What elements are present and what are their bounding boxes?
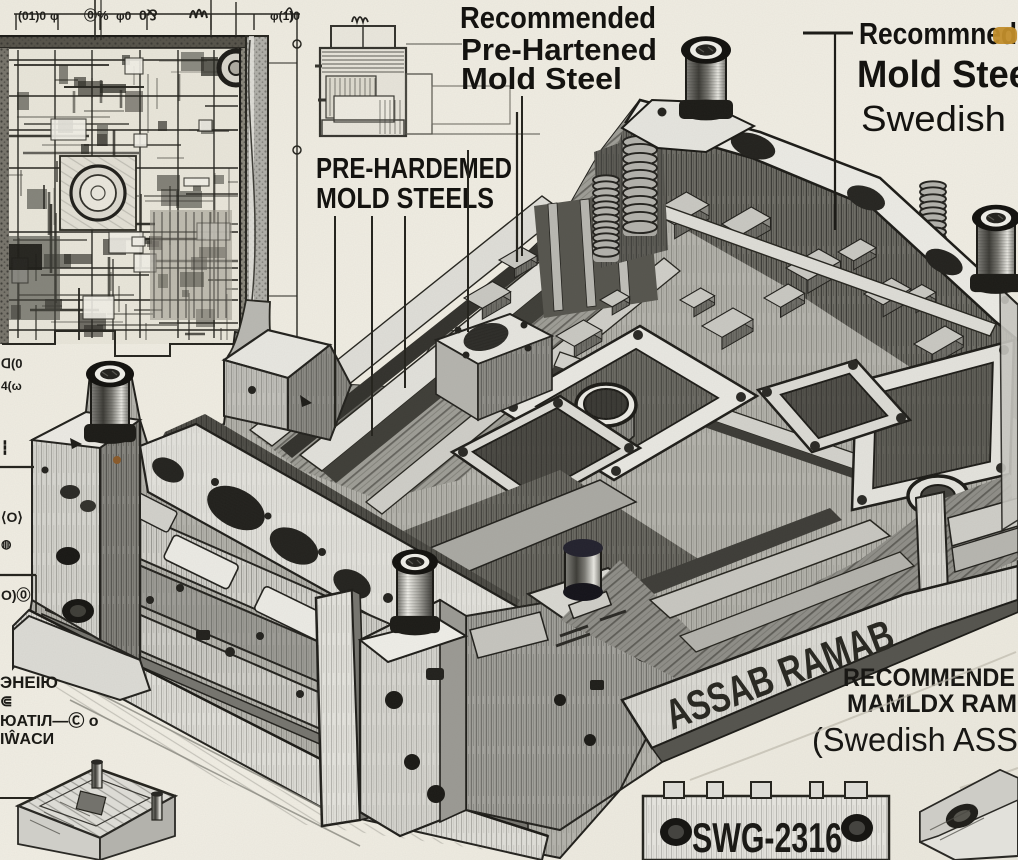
svg-text:◍: ◍	[1, 537, 12, 551]
svg-text:O)⓪: O)⓪	[1, 587, 31, 603]
svg-text:Swedish: Swedish	[861, 98, 1006, 139]
svg-text:Mold Stee: Mold Stee	[857, 54, 1018, 96]
svg-text:┇: ┇	[1, 440, 9, 455]
svg-text:Mold Steel: Mold Steel	[461, 61, 622, 96]
svg-text:⋐: ⋐	[0, 693, 13, 710]
svg-text:PRE-HARDEMED: PRE-HARDEMED	[316, 153, 512, 185]
svg-text:ЮATIЛ—Ⓒ o: ЮATIЛ—Ⓒ o	[0, 711, 99, 730]
svg-text:⟨O⟩: ⟨O⟩	[1, 509, 23, 525]
svg-text:IŴACИ: IŴACИ	[0, 729, 54, 748]
svg-text:ЭHEIЮ: ЭHEIЮ	[0, 673, 58, 692]
svg-text:Recommended: Recommended	[460, 0, 656, 35]
svg-text:SWG-2316: SWG-2316	[692, 814, 842, 860]
svg-text:4(ω: 4(ω	[1, 379, 22, 393]
svg-text:MAMLDX RAM: MAMLDX RAM	[847, 690, 1017, 718]
svg-text:ᗡ(0: ᗡ(0	[1, 356, 23, 371]
svg-text:(Swedish ASS: (Swedish ASS	[812, 721, 1018, 758]
